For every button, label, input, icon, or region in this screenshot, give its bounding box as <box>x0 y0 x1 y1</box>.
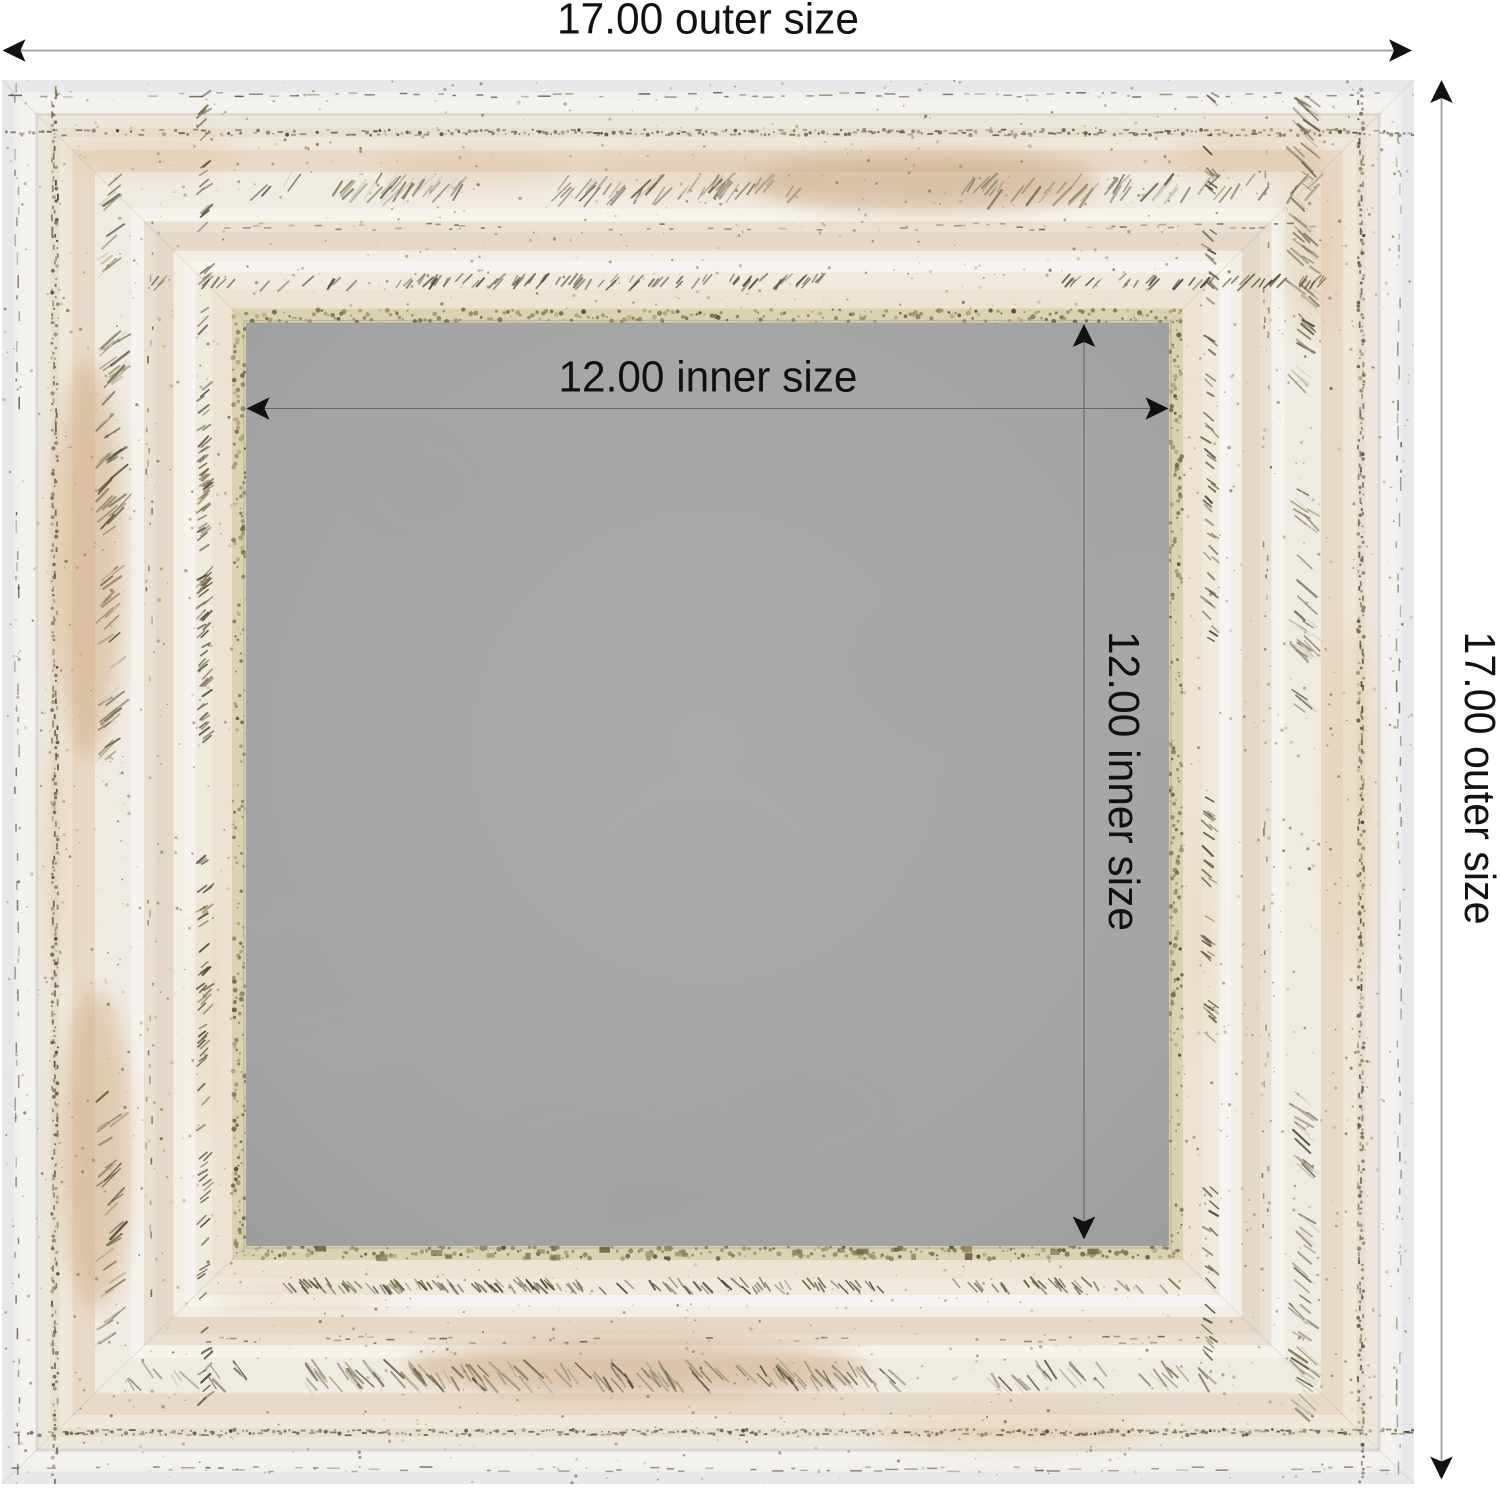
svg-text:17.00 outer size: 17.00 outer size <box>557 0 859 44</box>
svg-text:17.00 outer size: 17.00 outer size <box>1455 632 1500 925</box>
svg-text:12.00 inner size: 12.00 inner size <box>559 354 858 402</box>
svg-text:12.00 inner size: 12.00 inner size <box>1099 631 1147 931</box>
